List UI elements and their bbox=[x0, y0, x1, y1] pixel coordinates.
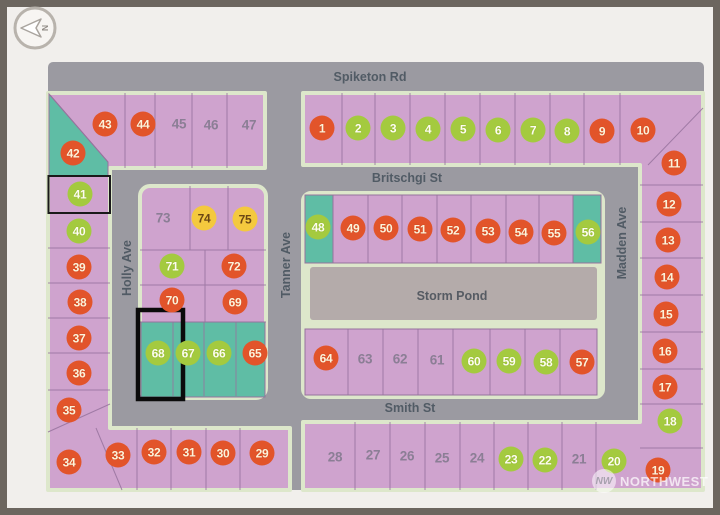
street-label-tanner: Tanner Ave bbox=[279, 232, 293, 298]
parcel-57-64-row bbox=[305, 329, 597, 395]
plat-map: N Storm Pond bbox=[0, 0, 720, 515]
street-label-holly: Holly Ave bbox=[120, 240, 134, 296]
parcel-65-68-teal-row bbox=[141, 322, 265, 397]
parcel-48-teal bbox=[305, 195, 333, 263]
compass-n-label: N bbox=[40, 25, 50, 31]
compass-icon: N bbox=[15, 8, 55, 48]
street-label-madden: Madden Ave bbox=[615, 207, 629, 280]
storm-pond-label: Storm Pond bbox=[417, 289, 488, 303]
nwmls-logo-icon: NW bbox=[592, 469, 616, 493]
street-label-spiketon: Spiketon Rd bbox=[334, 70, 407, 84]
street-label-britschgi: Britschgi St bbox=[372, 171, 443, 185]
watermark-text: NORTHWEST bbox=[620, 474, 708, 489]
street-label-smith: Smith St bbox=[385, 401, 437, 415]
plat-map-page: N Storm Pond bbox=[7, 7, 713, 508]
parcel-49-55-row bbox=[333, 195, 573, 263]
screenshot-root: N Storm Pond bbox=[0, 0, 720, 515]
parcel-56-teal bbox=[573, 195, 601, 263]
mls-watermark: NW NORTHWEST bbox=[592, 469, 708, 493]
